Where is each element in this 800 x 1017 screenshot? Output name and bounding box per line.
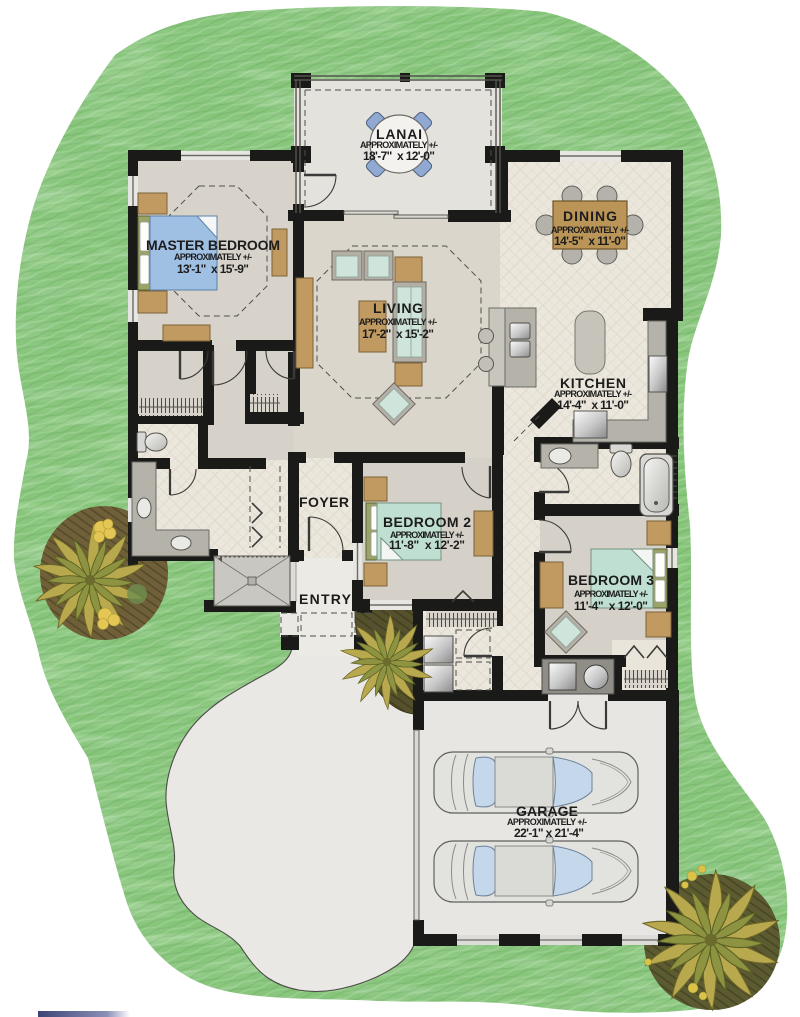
svg-text:14'-4" x 11'-0": 14'-4" x 11'-0" — [557, 398, 629, 412]
svg-text:DINING: DINING — [563, 208, 617, 224]
svg-text:MASTER BEDROOM: MASTER BEDROOM — [146, 237, 280, 253]
svg-text:FOYER: FOYER — [299, 494, 349, 510]
svg-text:BEDROOM 3: BEDROOM 3 — [568, 572, 654, 588]
svg-text:18'-7" x 12'-0": 18'-7" x 12'-0" — [363, 149, 435, 163]
svg-text:BEDROOM 2: BEDROOM 2 — [383, 514, 471, 530]
svg-text:13'-1" x 15'-9": 13'-1" x 15'-9" — [177, 262, 249, 276]
svg-text:LIVING: LIVING — [373, 300, 423, 316]
svg-text:17'-2" x 15'-2": 17'-2" x 15'-2" — [362, 327, 434, 341]
svg-text:APPROXIMATELY +/-: APPROXIMATELY +/- — [359, 317, 437, 327]
svg-text:11'-4" x 12'-0": 11'-4" x 12'-0" — [574, 599, 648, 613]
svg-text:11'-8" x 12'-2": 11'-8" x 12'-2" — [389, 538, 465, 552]
svg-text:14'-5" x 11'-0": 14'-5" x 11'-0" — [554, 234, 626, 248]
svg-text:APPROXIMATELY +/-: APPROXIMATELY +/- — [174, 252, 252, 262]
svg-text:ENTRY: ENTRY — [299, 591, 352, 607]
svg-text:APPROXIMATELY +/-: APPROXIMATELY +/- — [574, 589, 648, 599]
svg-text:22'-1" x 21'-4": 22'-1" x 21'-4" — [514, 826, 584, 840]
